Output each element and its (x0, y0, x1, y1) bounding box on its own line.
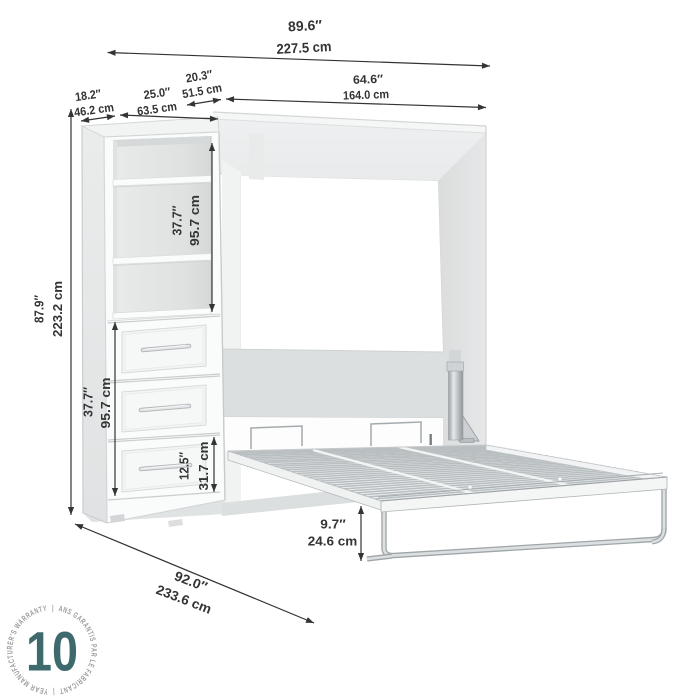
svg-text:89.6″: 89.6″ (288, 17, 323, 35)
svg-text:87.9″: 87.9″ (32, 295, 47, 323)
svg-text:227.5 cm: 227.5 cm (276, 38, 332, 57)
svg-text:24.6 cm: 24.6 cm (308, 534, 358, 549)
svg-text:164.0 cm: 164.0 cm (343, 87, 389, 103)
svg-text:64.6″: 64.6″ (353, 72, 384, 87)
svg-text:95.7 cm: 95.7 cm (187, 195, 202, 246)
svg-text:9.7″: 9.7″ (320, 517, 346, 532)
svg-text:37.7″: 37.7″ (170, 206, 185, 236)
svg-text:223.2 cm: 223.2 cm (50, 281, 65, 337)
svg-text:31.7 cm: 31.7 cm (196, 442, 211, 491)
svg-text:95.7 cm: 95.7 cm (98, 378, 113, 429)
svg-text:10: 10 (26, 619, 78, 682)
svg-text:37.7″: 37.7″ (81, 387, 96, 417)
svg-text:12.5″: 12.5″ (177, 452, 192, 480)
